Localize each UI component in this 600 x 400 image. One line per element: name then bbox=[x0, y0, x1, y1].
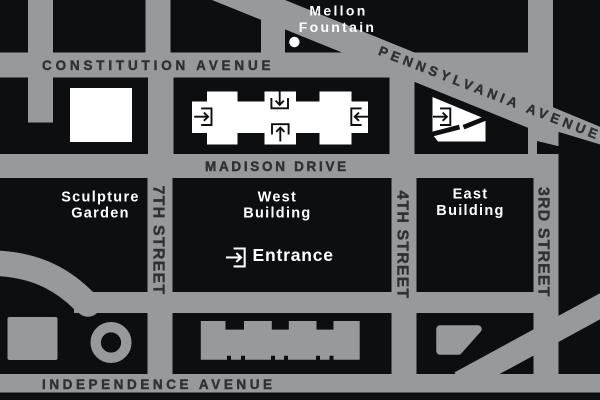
svg-text:INDEPENDENCE AVENUE: INDEPENDENCE AVENUE bbox=[42, 377, 276, 392]
svg-text:Garden: Garden bbox=[71, 206, 130, 222]
svg-text:Sculpture: Sculpture bbox=[61, 189, 140, 205]
svg-text:4TH STREET: 4TH STREET bbox=[394, 191, 411, 300]
svg-text:Building: Building bbox=[243, 206, 311, 222]
svg-text:Entrance: Entrance bbox=[253, 245, 334, 265]
svg-text:Mellon: Mellon bbox=[309, 3, 367, 19]
svg-text:Fountain: Fountain bbox=[299, 19, 377, 35]
svg-text:Building: Building bbox=[436, 203, 504, 219]
svg-text:CONSTITUTION AVENUE: CONSTITUTION AVENUE bbox=[42, 58, 274, 73]
svg-text:3RD STREET: 3RD STREET bbox=[535, 187, 552, 298]
svg-text:MADISON DRIVE: MADISON DRIVE bbox=[205, 159, 349, 174]
svg-text:7TH STREET: 7TH STREET bbox=[150, 186, 167, 296]
svg-text:East: East bbox=[453, 187, 489, 203]
svg-text:West: West bbox=[258, 190, 298, 206]
